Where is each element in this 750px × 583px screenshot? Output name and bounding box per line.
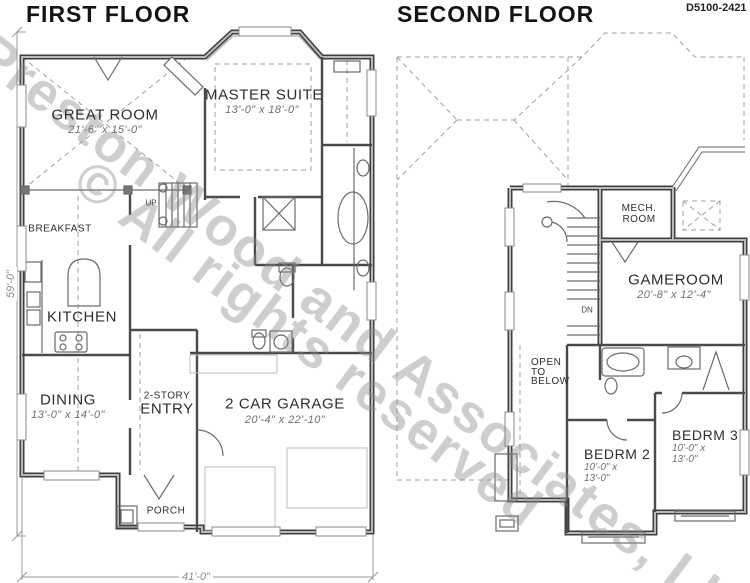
sink-icon xyxy=(27,310,40,325)
room-label-master-suite: MASTER SUITE xyxy=(205,87,323,104)
door-swing-arc xyxy=(197,430,223,456)
room-label-dining: DINING xyxy=(40,392,96,409)
attic-outline xyxy=(673,147,745,191)
room-label-kitchen: KITCHEN xyxy=(47,309,117,326)
closet-door-icon xyxy=(703,352,729,390)
dimension-width-label: 41'-0" xyxy=(179,571,213,583)
garage-door-opening xyxy=(212,527,280,536)
floor-plan-page: Preston Wood and Associates, LLC. © All … xyxy=(0,0,750,583)
garage-light-lines xyxy=(190,355,367,530)
door-swing-arc xyxy=(662,393,682,413)
mech-door-icon xyxy=(612,242,638,262)
fireplace-icon xyxy=(164,57,203,95)
sink-icon xyxy=(357,160,369,176)
room-dims-bedrm3: 10'-0" x13'-0" xyxy=(672,443,705,465)
dimension-height-label: 59'-0" xyxy=(5,267,17,301)
stove-icon xyxy=(55,332,87,352)
room-dims-gameroom: 20'-8" x 12'-4" xyxy=(637,289,711,301)
room-label-breakfast: BREAKFAST xyxy=(28,224,91,235)
room-label-entry: ENTRY xyxy=(140,401,194,418)
room-dims-great-room: 21'-6" x 15'-0" xyxy=(68,124,142,136)
toilet-icon xyxy=(605,378,617,394)
door-swing-arc xyxy=(607,420,627,440)
room-label-bedrm2: BEDRM 2 xyxy=(584,446,650,462)
shower-icon xyxy=(263,197,295,230)
fridge-icon xyxy=(25,262,41,282)
toilet-icon xyxy=(253,333,265,349)
room-label-bedrm3: BEDRM 3 xyxy=(672,427,738,443)
garage-door-opening xyxy=(316,527,366,536)
room-label-mech-room: MECH.ROOM xyxy=(622,203,657,225)
sink-icon xyxy=(357,260,369,276)
kitchen-island-icon xyxy=(68,259,100,306)
room-dims-garage: 20'-4" x 22'-10" xyxy=(245,414,325,426)
front-door-icon xyxy=(144,475,174,499)
second-floor-title: SECOND FLOOR xyxy=(397,1,594,28)
double-door-icon xyxy=(94,57,122,80)
room-dims-bedrm2: 10'-0" x13'-0" xyxy=(584,462,617,484)
room-label-gameroom: GAMEROOM xyxy=(628,272,724,289)
bathtub-icon xyxy=(338,192,368,244)
sink-icon xyxy=(27,292,40,307)
porch-column-icon xyxy=(496,516,518,531)
plan-number: D5100-2421 xyxy=(686,2,747,14)
open-to-below-label: OPENTOBELOW xyxy=(531,358,570,387)
room-label-garage: 2 CAR GARAGE xyxy=(225,396,345,413)
room-dims-dining: 13'-0" x 14'-0" xyxy=(31,409,105,421)
bathtub-icon xyxy=(602,348,644,376)
room-label-porch: PORCH xyxy=(147,506,186,517)
sink-icon xyxy=(676,356,692,368)
second-floor-stairs-icon xyxy=(542,201,600,335)
stairs-up-label: UP xyxy=(145,199,156,208)
first-floor-title: FIRST FLOOR xyxy=(26,1,190,28)
room-dims-master-suite: 13'-0" x 18'-0" xyxy=(225,104,299,116)
stairs-dn-label: DN xyxy=(581,306,593,315)
chimney-chase-icon xyxy=(495,454,517,501)
room-label-great-room: GREAT ROOM xyxy=(51,107,158,124)
